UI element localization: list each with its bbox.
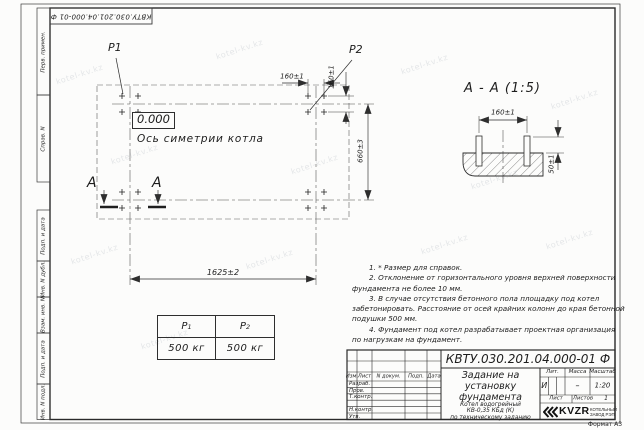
tb-col-ndocum: N докум. bbox=[376, 374, 400, 379]
loads-table: P1 P2 500 кг 500 кг bbox=[157, 315, 275, 360]
field-podp-data-1: Подп. и дата bbox=[41, 217, 47, 254]
lit-value: И bbox=[541, 382, 547, 390]
drawing-sheet: kotel-kv.kz kotel-kv.kz kotel-kv.kz kote… bbox=[0, 0, 644, 430]
kvzr-caption-line: ЗАВОД РЭП bbox=[590, 412, 617, 417]
kvzr-logo-caption: КОТЕЛЬНЫЙ ЗАВОД РЭП bbox=[590, 407, 617, 417]
doc-title-line: Задание на bbox=[441, 370, 540, 381]
notes-block: 1. * Размер для справок. 2. Отклонение о… bbox=[352, 263, 615, 345]
note-line: 2. Отклонение от горизонтального уровня … bbox=[352, 273, 615, 283]
dim-1625: 1625±2 bbox=[207, 269, 239, 277]
kvzr-logo-mark-icon bbox=[543, 406, 558, 418]
section-dim-160: 160±1 bbox=[491, 110, 515, 117]
p2-label: P2 bbox=[349, 44, 363, 55]
field-podp-data-2: Подп. и дата bbox=[41, 340, 47, 377]
loads-value-p1: 500 кг bbox=[158, 338, 216, 359]
tb-col-podp: Подп. bbox=[408, 374, 424, 379]
p1-label: P1 bbox=[108, 42, 122, 53]
kvzr-logo-text: KVZR bbox=[559, 406, 590, 417]
loads-value-p2: 500 кг bbox=[216, 338, 274, 359]
tb-row-utv: Утв. bbox=[349, 415, 360, 420]
note-line: 4. Фундамент под котел разрабатывает про… bbox=[352, 325, 615, 335]
section-letter-left: А bbox=[87, 176, 97, 190]
tb-col-izm: Изм. bbox=[346, 374, 358, 379]
product-name: Котел водогрейный КВ-0,35 КБд (К) по тех… bbox=[441, 402, 540, 421]
loads-header-p1: P1 bbox=[158, 316, 216, 338]
level-mark: 0.000 bbox=[132, 112, 175, 129]
note-line: фундамента не более 10 мм. bbox=[352, 284, 615, 294]
lit-header: Лит. bbox=[546, 370, 559, 376]
section-dim-50: 50±1 bbox=[549, 154, 556, 173]
section-letter-right: А bbox=[152, 176, 162, 190]
dim-160-horizontal: 160±1 bbox=[280, 74, 304, 81]
top-reference-stamp: КВТУ.030.201.04.000-01 Ф bbox=[51, 13, 152, 20]
note-line: 1. * Размер для справок. bbox=[352, 263, 615, 273]
field-inv-n-dubl: Инв. N дубл. bbox=[41, 261, 47, 297]
axis-caption: Ось симетрии котла bbox=[137, 134, 264, 145]
format-note: Формат А3 bbox=[588, 422, 622, 428]
loads-p2-subscript: 2 bbox=[246, 323, 250, 331]
product-name-line: по техническому заданию bbox=[441, 415, 540, 421]
scale-value: 1:20 bbox=[595, 383, 611, 390]
loads-header-p2: P2 bbox=[216, 316, 274, 338]
loads-p1-subscript: 1 bbox=[187, 323, 191, 331]
dim-660: 660±3 bbox=[358, 139, 365, 163]
section-title: А - А (1:5) bbox=[464, 82, 541, 95]
note-line: забетонировать. Расстояние от осей крайн… bbox=[352, 304, 615, 314]
doc-title-line: установку bbox=[441, 381, 540, 392]
tb-row-tkontr: Т.контр. bbox=[349, 395, 372, 400]
tb-col-list: Лист bbox=[358, 374, 371, 379]
tb-col-data: Дата bbox=[427, 374, 440, 379]
mass-header: Масса bbox=[569, 370, 587, 376]
note-line: по нагрузкам на фундамент. bbox=[352, 335, 615, 345]
sheets-value: 1 bbox=[604, 396, 608, 402]
field-sprav-n: Справ. N bbox=[41, 126, 47, 151]
scale-header: Масштаб bbox=[589, 370, 616, 376]
doc-title: Задание на установку фундамента bbox=[441, 370, 540, 403]
note-line: подушки 500 мм. bbox=[352, 314, 615, 324]
field-vzam-inv-n: Взам. инв. N bbox=[41, 297, 47, 333]
title-block-designation: КВТУ.030.201.04.000-01 Ф bbox=[441, 353, 615, 365]
note-line: 3. В случае отсутствия бетонного пола пл… bbox=[352, 294, 615, 304]
sheets-label: Листов bbox=[573, 396, 593, 401]
field-inv-n-podl: Инв. N подл. bbox=[41, 384, 47, 420]
tb-row-nkontr: Н.контр. bbox=[349, 408, 373, 413]
mass-value: – bbox=[576, 382, 580, 390]
tb-row-razrab: Разраб. bbox=[349, 382, 370, 387]
sheet-label: Лист bbox=[549, 396, 563, 401]
dim-160-vertical: 160±1 bbox=[329, 65, 336, 89]
field-perv-primen: Перв. примен. bbox=[41, 31, 47, 72]
